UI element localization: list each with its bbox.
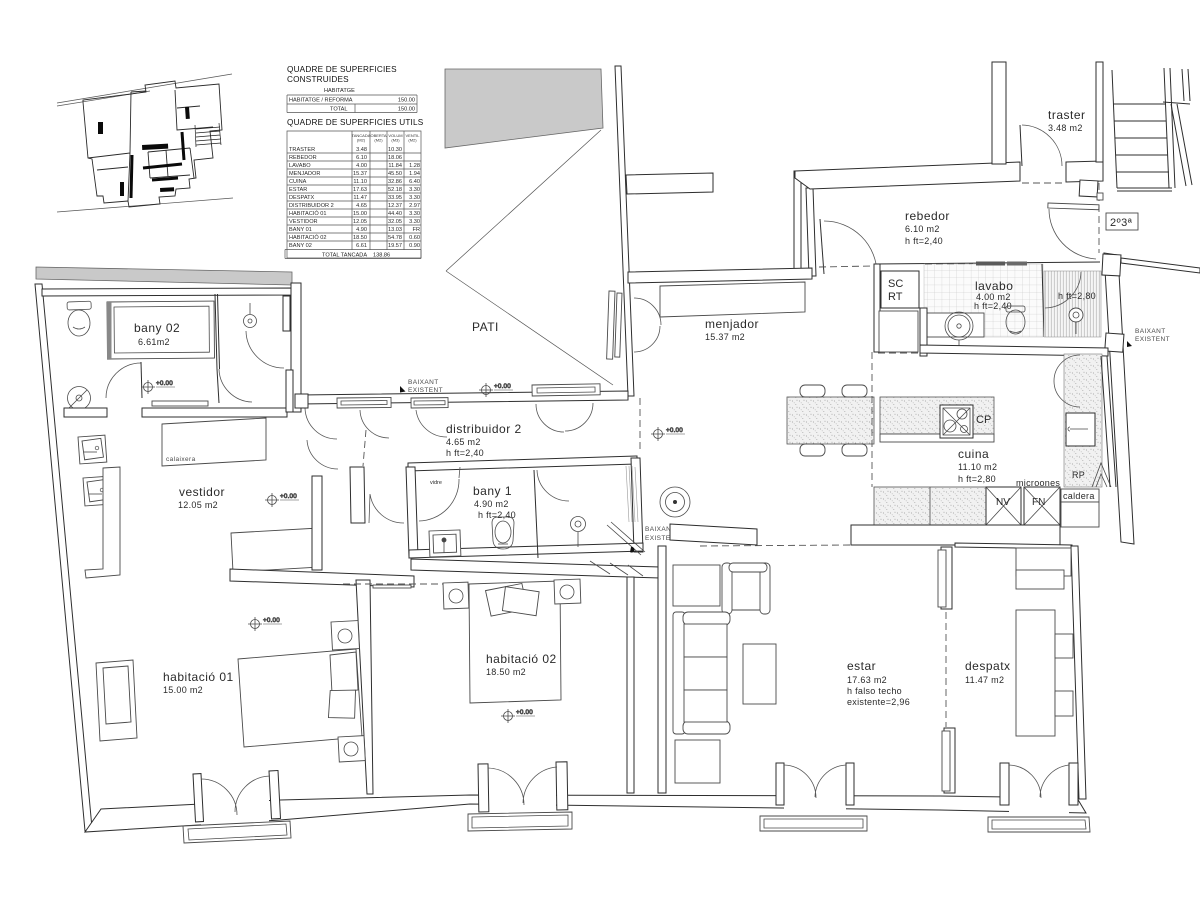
svg-text:1.94: 1.94 [409,171,420,177]
svg-text:h ft=2,40: h ft=2,40 [478,510,516,520]
svg-text:h ft=2,80: h ft=2,80 [958,474,996,484]
svg-text:19.57: 19.57 [388,243,402,249]
svg-text:13.03: 13.03 [388,227,402,233]
svg-text:BAIXANT: BAIXANT [1135,328,1166,335]
svg-text:CUINA: CUINA [289,179,307,185]
svg-text:CONSTRUIDES: CONSTRUIDES [287,75,349,84]
svg-text:FR: FR [413,227,420,233]
svg-text:(M2): (M2) [408,138,417,143]
svg-text:0.60: 0.60 [409,235,420,241]
svg-text:3.30: 3.30 [409,187,420,193]
svg-text:traster: traster [1048,108,1086,122]
svg-text:VESTIDOR: VESTIDOR [289,219,318,225]
svg-text:despatx: despatx [965,659,1011,673]
svg-text:+0.00: +0.00 [666,427,683,434]
svg-text:LAVABO: LAVABO [289,163,311,169]
svg-text:ESTAR: ESTAR [289,187,307,193]
svg-text:h ft=2,40: h ft=2,40 [905,236,943,246]
svg-text:caldera: caldera [1063,491,1095,501]
svg-text:6.61: 6.61 [356,243,367,249]
svg-text:15.37 m2: 15.37 m2 [705,332,745,342]
svg-text:DESPATX: DESPATX [289,195,315,201]
svg-text:11.47 m2: 11.47 m2 [965,675,1004,685]
svg-text:(M3): (M3) [391,138,400,143]
svg-text:3.30: 3.30 [409,211,420,217]
svg-text:lavabo: lavabo [975,279,1013,293]
svg-text:menjador: menjador [705,317,759,331]
svg-text:cuina: cuina [958,447,989,461]
svg-text:+0.00: +0.00 [280,493,297,500]
svg-text:1.28: 1.28 [409,163,420,169]
svg-text:habitació 01: habitació 01 [163,670,234,684]
svg-text:HABITATGE: HABITATGE [324,88,355,94]
svg-text:15.37: 15.37 [353,171,367,177]
svg-text:150.00: 150.00 [398,98,415,104]
svg-text:CP: CP [976,414,991,426]
svg-text:vestidor: vestidor [179,485,225,499]
svg-text:SC: SC [888,278,903,290]
svg-text:0.90: 0.90 [409,243,420,249]
svg-text:HABITACIÓ 02: HABITACIÓ 02 [289,234,327,241]
svg-text:TOTAL: TOTAL [330,107,348,113]
svg-text:habitació 02: habitació 02 [486,652,557,666]
svg-text:17.63: 17.63 [353,187,367,193]
svg-text:4.65: 4.65 [356,203,367,209]
svg-text:33.95: 33.95 [388,195,402,201]
svg-text:h ft=2,40: h ft=2,40 [446,448,484,458]
svg-text:3.30: 3.30 [409,219,420,225]
svg-text:32.86: 32.86 [388,179,402,185]
svg-text:18.06: 18.06 [388,155,402,161]
svg-text:+0.00: +0.00 [516,709,533,716]
svg-text:3.30: 3.30 [409,195,420,201]
svg-text:11.84: 11.84 [388,163,402,169]
svg-text:4.90: 4.90 [356,227,367,233]
svg-text:REBEDOR: REBEDOR [289,155,317,161]
svg-text:32.05: 32.05 [388,219,402,225]
svg-text:11.10: 11.10 [353,179,367,185]
svg-text:15.00: 15.00 [353,211,367,217]
svg-text:15.00 m2: 15.00 m2 [163,685,203,695]
svg-text:52.18: 52.18 [388,187,402,193]
svg-text:11.10 m2: 11.10 m2 [958,462,997,472]
svg-text:6.40: 6.40 [409,179,420,185]
svg-text:calaixera: calaixera [166,456,196,463]
svg-text:17.63 m2: 17.63 m2 [847,675,887,685]
svg-text:TOTAL TANCADA: TOTAL TANCADA [322,253,367,259]
svg-text:TRASTER: TRASTER [289,147,315,153]
svg-text:HABITACIÓ 01: HABITACIÓ 01 [289,210,327,217]
svg-text:150.00: 150.00 [398,107,415,113]
svg-text:2.97: 2.97 [409,203,420,209]
svg-text:11.47: 11.47 [353,195,367,201]
svg-text:18.50 m2: 18.50 m2 [486,667,526,677]
svg-text:PATI: PATI [472,320,499,334]
svg-text:+0.00: +0.00 [494,383,511,390]
svg-text:18.50: 18.50 [353,235,367,241]
svg-text:6.10 m2: 6.10 m2 [905,224,940,234]
svg-text:3.48: 3.48 [356,147,367,153]
svg-text:rebedor: rebedor [905,209,950,223]
svg-text:QUADRE DE SUPERFICIES UTILS: QUADRE DE SUPERFICIES UTILS [287,118,424,127]
svg-text:HABITATGE / REFORMA: HABITATGE / REFORMA [289,98,353,104]
svg-text:44.40: 44.40 [388,211,402,217]
svg-text:DISTRIBUIDOR 2: DISTRIBUIDOR 2 [289,203,334,209]
svg-text:(M2): (M2) [357,138,366,143]
svg-text:estar: estar [847,659,876,673]
svg-text:NV: NV [996,497,1010,508]
svg-text:MENJADOR: MENJADOR [289,171,320,177]
svg-text:FN: FN [1032,497,1045,508]
svg-text:6.10: 6.10 [356,155,367,161]
svg-text:BAIXANT: BAIXANT [408,379,439,386]
svg-text:4.90 m2: 4.90 m2 [474,499,509,509]
svg-text:bany 1: bany 1 [473,484,512,498]
svg-text:EXISTENT: EXISTENT [408,387,443,394]
svg-text:45.50: 45.50 [388,171,402,177]
svg-text:138.86: 138.86 [373,253,390,259]
svg-text:12.37: 12.37 [388,203,402,209]
svg-text:h ft=2,80: h ft=2,80 [1058,291,1096,301]
svg-text:+0.00: +0.00 [263,617,280,624]
svg-text:RT: RT [888,291,903,303]
svg-text:3.48 m2: 3.48 m2 [1048,123,1083,133]
svg-text:BANY 01: BANY 01 [289,227,312,233]
svg-text:2º3ª: 2º3ª [1110,217,1133,229]
svg-text:12.05: 12.05 [353,219,367,225]
svg-text:(M2): (M2) [374,138,383,143]
svg-text:54.78: 54.78 [388,235,402,241]
svg-text:h falso techo: h falso techo [847,686,902,696]
svg-text:10.30: 10.30 [388,147,402,153]
svg-text:12.05 m2: 12.05 m2 [178,500,218,510]
svg-text:4.00: 4.00 [356,163,367,169]
svg-text:distribuidor 2: distribuidor 2 [446,422,522,436]
svg-text:BANY 02: BANY 02 [289,243,312,249]
svg-text:6.61m2: 6.61m2 [138,337,170,347]
svg-text:vidre: vidre [430,480,442,486]
svg-text:QUADRE DE SUPERFICIES: QUADRE DE SUPERFICIES [287,65,397,74]
svg-text:existente=2,96: existente=2,96 [847,697,910,707]
svg-text:EXISTENT: EXISTENT [1135,336,1170,343]
svg-text:RP: RP [1072,470,1085,480]
svg-text:4.65 m2: 4.65 m2 [446,437,481,447]
svg-text:+0.00: +0.00 [156,380,173,387]
svg-text:bany 02: bany 02 [134,321,180,335]
